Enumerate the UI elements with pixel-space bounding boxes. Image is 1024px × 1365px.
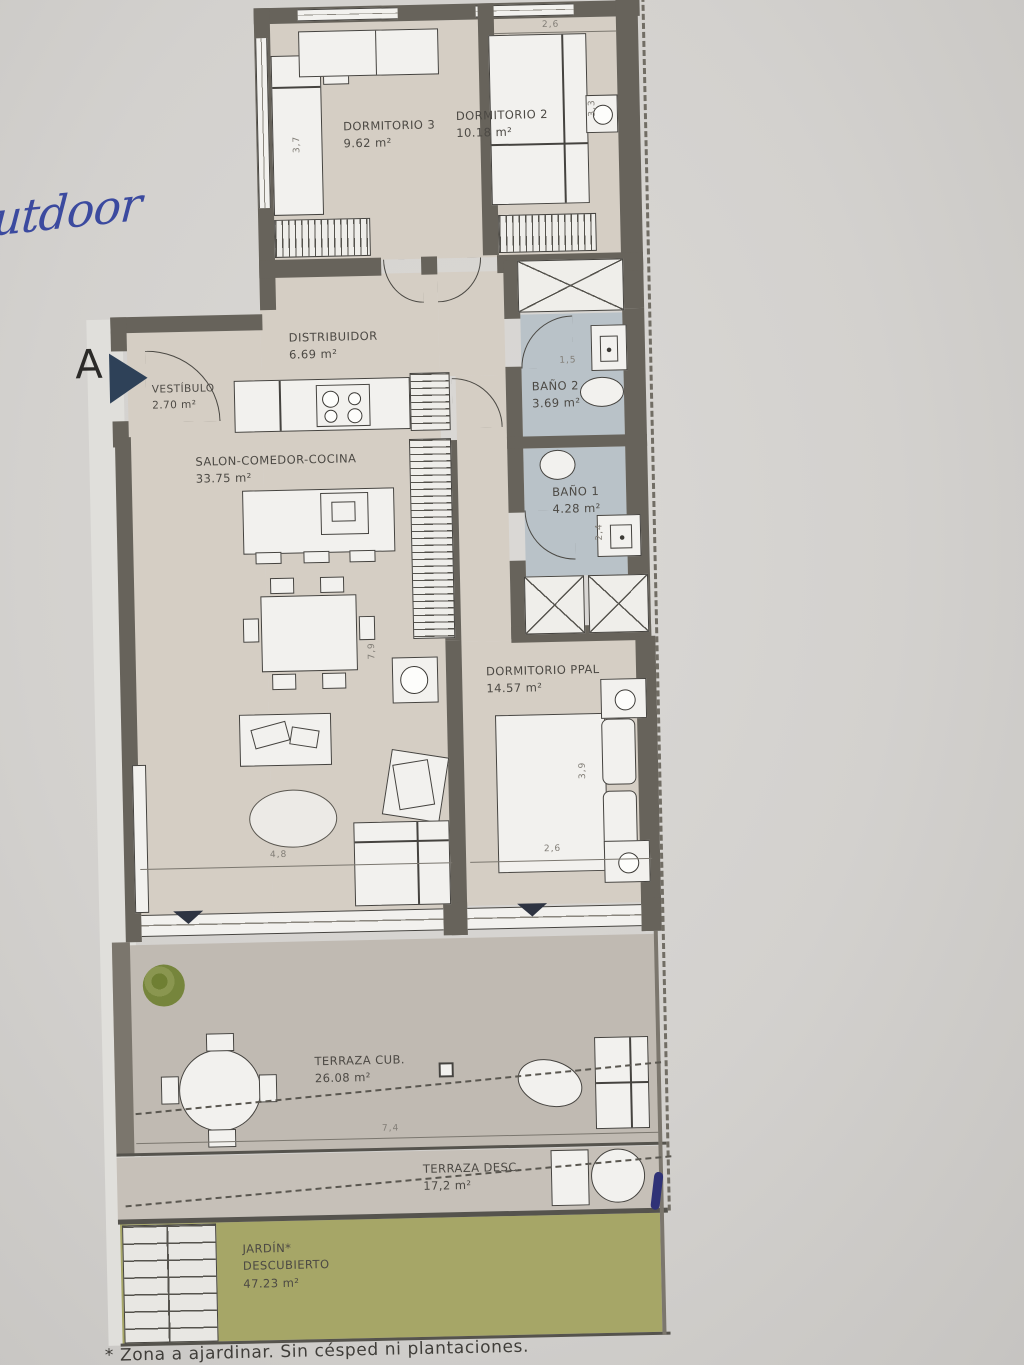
sink-bano2	[591, 324, 628, 371]
dim-terraza: 7,4	[382, 1123, 400, 1133]
terrace-chair	[259, 1074, 278, 1102]
wardrobe-dorm2	[498, 213, 597, 253]
nightstand-ppal	[604, 840, 651, 883]
stove	[316, 384, 371, 427]
coffee-table	[239, 713, 332, 767]
floorplan: DORMITORIO 39.62 m² DORMITORIO 210.18 m²…	[0, 0, 1024, 1365]
stool	[349, 550, 375, 563]
wall-segment	[110, 317, 127, 351]
chair	[272, 674, 296, 691]
dim-ppal-vert: 3,9	[578, 762, 588, 780]
dim-dorm3-height: 3,7	[292, 136, 302, 154]
washer	[392, 656, 439, 703]
terrace-desc-table	[550, 1149, 589, 1206]
room-label-bano2: BAÑO 23.69 m²	[532, 377, 581, 413]
room-label-ppal: DORMITORIO PPAL14.57 m²	[486, 661, 600, 698]
pantry-shelving	[409, 438, 455, 639]
window-dorm3	[298, 7, 398, 21]
chair	[243, 618, 260, 642]
shower-bano1	[588, 574, 649, 633]
wall-segment	[110, 314, 262, 333]
room-label-salon: SALON-COMEDOR-COCINA33.75 m²	[195, 450, 357, 488]
dim-dorm2-width: 2,6	[542, 20, 560, 30]
wall-segment	[641, 898, 662, 931]
room-label-vestibulo: VESTÍBULO2.70 m²	[152, 381, 215, 414]
room-label-distribuidor: DISTRIBUIDOR6.69 m²	[289, 328, 379, 364]
stool	[303, 551, 329, 564]
shower-bano2	[517, 258, 624, 312]
stool	[255, 552, 281, 565]
island-sink	[320, 492, 369, 535]
room-label-terraza-cub: TERRAZA CUB.26.08 m²	[314, 1051, 405, 1087]
floorplan-photo: outdoor	[0, 0, 1024, 1365]
dim-ppal-horiz: 2,6	[544, 844, 562, 854]
door-direction-marker	[517, 903, 547, 917]
desk-dorm3	[298, 28, 439, 77]
kitchen-island	[242, 487, 395, 554]
pillow	[601, 718, 636, 785]
room-label-dorm2: DORMITORIO 210.18 m²	[456, 106, 549, 143]
chair	[270, 578, 294, 595]
terrace-chair	[206, 1033, 234, 1052]
room-label-dorm3: DORMITORIO 39.62 m²	[343, 116, 436, 153]
downpipe-symbol	[439, 1062, 454, 1077]
wall-segment	[421, 256, 437, 274]
dim-salon-vert: 7,9	[367, 642, 377, 660]
chair	[359, 616, 376, 640]
section-marker-arrow-icon	[109, 353, 148, 404]
wall-segment	[443, 902, 468, 936]
nightstand-ppal	[600, 678, 647, 719]
door-direction-marker	[173, 911, 203, 925]
terrace-chair	[161, 1076, 180, 1104]
sliding-door-ppal	[467, 904, 641, 930]
room-label-jardin: JARDÍN*DESCUBIERTO47.23 m²	[242, 1239, 330, 1293]
chair	[322, 672, 346, 689]
dim-bano1: 2,4	[594, 523, 604, 541]
dim-bano2: 1,5	[559, 355, 577, 365]
fridge-unit	[410, 372, 451, 431]
room-label-terraza-desc: TERRAZA DESC.17,2 m²	[423, 1159, 522, 1196]
terrace-lounger	[594, 1036, 650, 1129]
dining-table	[260, 594, 358, 672]
room-label-bano1: BAÑO 14.28 m²	[552, 483, 601, 519]
section-marker-label: A	[75, 342, 103, 389]
armchair	[382, 749, 449, 823]
garden-steps	[122, 1223, 219, 1343]
dim-dorm2-height: 3,3	[587, 99, 597, 117]
dim-salon-horiz: 4,8	[270, 850, 288, 860]
terrace-chair	[208, 1129, 236, 1148]
wall-segment	[259, 258, 381, 279]
shower-bano1	[524, 575, 585, 634]
wardrobe-dorm3	[274, 218, 371, 258]
chair	[320, 577, 344, 594]
